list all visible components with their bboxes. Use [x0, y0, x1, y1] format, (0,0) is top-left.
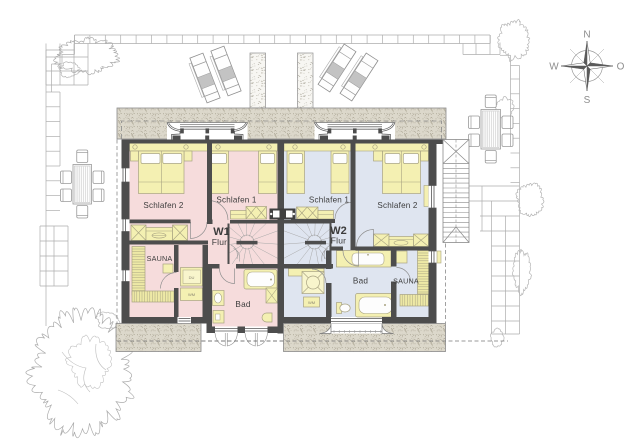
svg-text:S: S	[584, 95, 591, 106]
svg-text:N: N	[583, 30, 590, 41]
svg-text:Schlafen 1: Schlafen 1	[309, 196, 350, 205]
svg-text:WM: WM	[308, 300, 315, 305]
svg-text:Schlafen 2: Schlafen 2	[377, 201, 418, 210]
svg-text:WM: WM	[188, 292, 195, 297]
svg-text:W: W	[549, 62, 559, 73]
svg-text:O: O	[617, 62, 625, 73]
svg-text:Schlafen 2: Schlafen 2	[143, 201, 184, 210]
svg-text:SAUNA: SAUNA	[147, 254, 173, 263]
svg-text:Bad: Bad	[353, 277, 368, 286]
svg-text:Flur: Flur	[331, 236, 346, 246]
svg-text:DU: DU	[189, 275, 195, 280]
svg-text:Bad: Bad	[235, 300, 250, 309]
svg-text:Schlafen 1: Schlafen 1	[216, 196, 257, 205]
svg-text:SAUNA: SAUNA	[393, 277, 419, 286]
svg-text:Flur: Flur	[212, 237, 227, 247]
